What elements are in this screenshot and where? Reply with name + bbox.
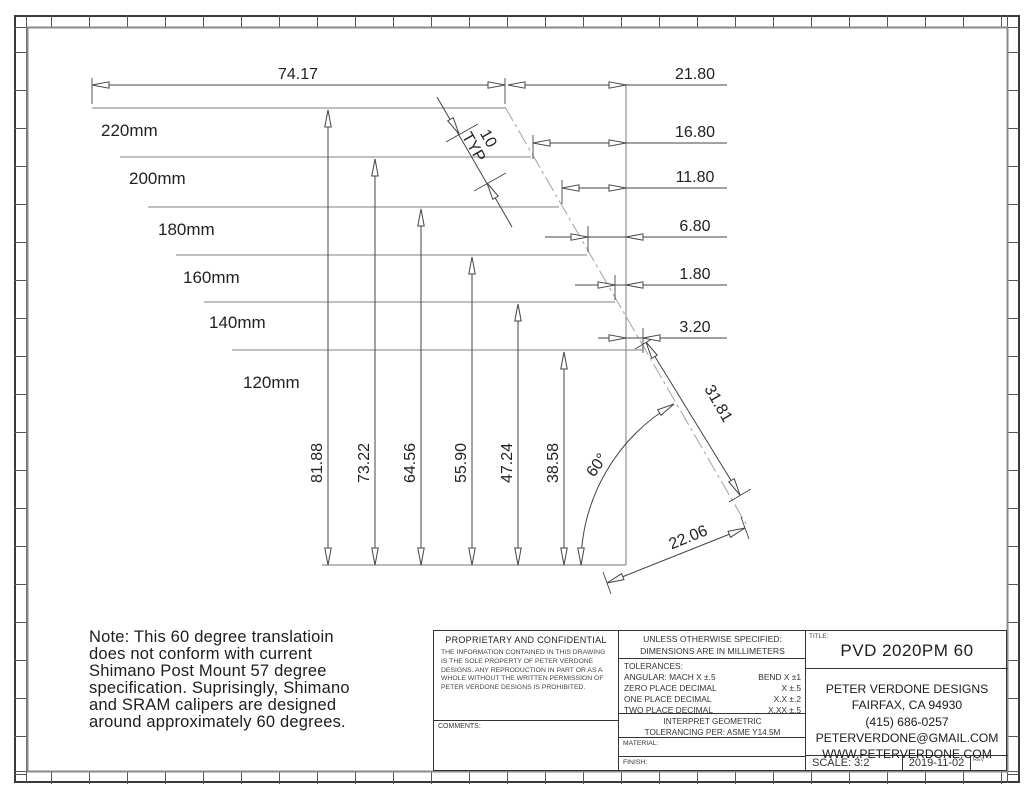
dim-typ-spacing: 10TYP <box>458 121 503 165</box>
company-line: PETERVERDONE@GMAIL.COM <box>806 730 1008 746</box>
tolerance-label: ONE PLACE DECIMAL <box>624 694 712 705</box>
date-value: 2019-11-02 <box>903 756 971 770</box>
note-line: specification. Suprisingly, Shimano <box>89 680 419 697</box>
tolerances-heading: TOLERANCES: <box>624 661 801 672</box>
tolerances-cell: TOLERANCES: ANGULAR: MACH X ±.5 BEND X ±… <box>619 659 806 714</box>
company-line: FAIRFAX, CA 94930 <box>806 697 1008 713</box>
company-line: (415) 686-0257 <box>806 714 1008 730</box>
proprietary-line: THE INFORMATION CONTAINED IN THIS DRAWIN… <box>441 649 611 658</box>
proprietary-line: WHOLE WITHOUT THE WRITTEN PERMISSION OF <box>441 675 611 684</box>
dim-right-0: 21.80 <box>675 66 715 83</box>
title-label: TITLE: <box>809 633 829 640</box>
dim-diagonal-upper: 31.81 <box>701 382 736 425</box>
title-company-cell: TITLE: PVD 2020PM 60 PETER VERDONE DESIG… <box>806 631 1008 770</box>
dim-vertical-2: 64.56 <box>402 443 419 483</box>
dim-right-1: 16.80 <box>675 124 715 141</box>
comments-label: COMMENTS: <box>434 720 619 770</box>
proprietary-cell: PROPRIETARY AND CONFIDENTIAL THE INFORMA… <box>434 631 619 770</box>
tolerance-value: BEND X ±1 <box>758 672 801 683</box>
interpret-line2: TOLERANCING PER: ASME Y14.5M <box>619 727 806 738</box>
dim-right-4: 1.80 <box>679 266 710 283</box>
proprietary-line: PETER VERDONE DESIGNS IS PROHIBITED. <box>441 684 611 693</box>
note-line: and SRAM calipers are designed <box>89 697 419 714</box>
drawing-title: PVD 2020PM 60 <box>806 641 1008 661</box>
rotor-label-180: 180mm <box>158 220 215 239</box>
note-line: Shimano Post Mount 57 degree <box>89 663 419 680</box>
note-line: does not conform with current <box>89 646 419 663</box>
dim-right-2: 11.80 <box>676 169 715 186</box>
dim-diagonal-lower: 22.06 <box>667 522 711 553</box>
proprietary-body: THE INFORMATION CONTAINED IN THIS DRAWIN… <box>434 645 618 693</box>
drawing-sheet: 74.17 21.80 16.80 11.80 6.80 1.80 3.20 2… <box>0 0 1035 800</box>
rotor-label-160: 160mm <box>183 268 240 287</box>
dim-vertical-0: 81.88 <box>309 443 326 483</box>
proprietary-line: DESIGNS. ANY REPRODUCTION IN PART OR AS … <box>441 667 611 676</box>
dim-vertical-3: 55.90 <box>453 443 470 483</box>
company-info: PETER VERDONE DESIGNS FAIRFAX, CA 94930 … <box>806 669 1008 756</box>
title-cell: TITLE: PVD 2020PM 60 <box>806 631 1008 669</box>
company-line: PETER VERDONE DESIGNS <box>806 681 1008 697</box>
dim-right-5: 3.20 <box>679 319 710 336</box>
rotor-label-200: 200mm <box>129 169 186 188</box>
tolerance-value: X ±.5 <box>782 683 802 694</box>
note-text: Note: This 60 degree translatioin does n… <box>89 629 419 731</box>
rotor-label-140: 140mm <box>209 313 266 332</box>
dim-angle: 60° <box>583 451 611 481</box>
scale-date-rev-row: SCALE: 3:2 2019-11-02 REV <box>806 756 1008 770</box>
tolerance-label: ANGULAR: MACH X ±.5 <box>624 672 716 683</box>
specs-cell: UNLESS OTHERWISE SPECIFIED: DIMENSIONS A… <box>619 631 806 770</box>
dim-right-3: 6.80 <box>679 218 710 235</box>
scale-value: SCALE: 3:2 <box>806 756 903 770</box>
tolerance-row: ANGULAR: MACH X ±.5 BEND X ±1 <box>624 672 801 683</box>
rev-label: REV <box>971 756 1008 770</box>
proprietary-line: IS THE SOLE PROPERTY OF PETER VERDONE <box>441 658 611 667</box>
finish-label: FINISH: <box>619 757 806 770</box>
note-line: around approximately 60 degrees. <box>89 714 419 731</box>
dim-vertical-4: 47.24 <box>499 443 516 483</box>
dim-vertical-1: 73.22 <box>356 443 373 483</box>
units-note: UNLESS OTHERWISE SPECIFIED: DIMENSIONS A… <box>619 631 806 659</box>
tolerance-row: ZERO PLACE DECIMAL X ±.5 <box>624 683 801 694</box>
dim-vertical-5: 38.58 <box>545 443 562 483</box>
interpret-cell: INTERPRET GEOMETRIC TOLERANCING PER: ASM… <box>619 714 806 738</box>
dim-top-width: 74.17 <box>278 66 318 83</box>
note-line: Note: This 60 degree translatioin <box>89 629 419 646</box>
tolerance-row: ONE PLACE DECIMAL X.X ±.2 <box>624 694 801 705</box>
material-label: MATERIAL: <box>619 738 806 757</box>
title-block: PROPRIETARY AND CONFIDENTIAL THE INFORMA… <box>433 630 1007 771</box>
dimension-lines <box>92 85 745 583</box>
units-note-line2: DIMENSIONS ARE IN MILLIMETERS <box>619 645 806 657</box>
tolerance-label: ZERO PLACE DECIMAL <box>624 683 717 694</box>
rotor-label-120: 120mm <box>243 373 300 392</box>
interpret-line1: INTERPRET GEOMETRIC <box>619 716 806 727</box>
units-note-line1: UNLESS OTHERWISE SPECIFIED: <box>619 633 806 645</box>
tolerance-value: X.X ±.2 <box>774 694 801 705</box>
proprietary-heading: PROPRIETARY AND CONFIDENTIAL <box>434 631 618 645</box>
rotor-label-220: 220mm <box>101 121 158 140</box>
